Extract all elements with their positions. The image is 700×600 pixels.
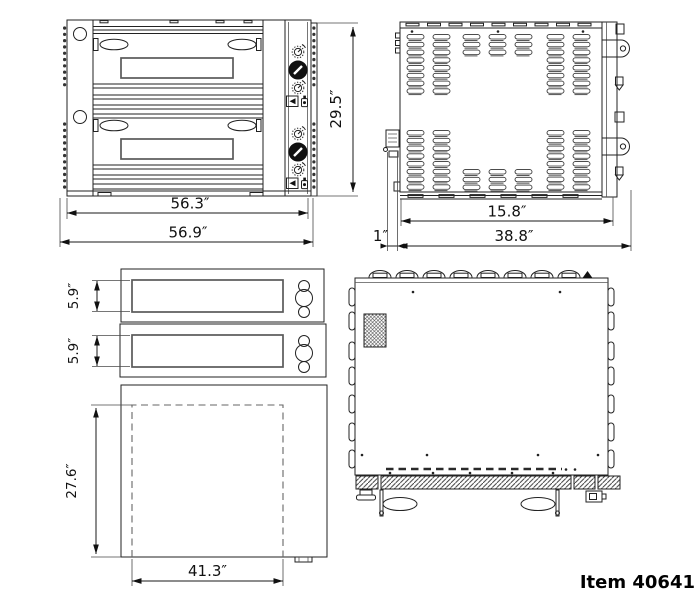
dimension-callouts: 56.3″ 56.9″ 29.5″ 15.8″ 38.8″ 1″ 5.9″ 5.… xyxy=(60,23,631,586)
door-handle-lower-left xyxy=(100,120,128,131)
door-handle-upper-right xyxy=(228,39,256,50)
chamber-top-view xyxy=(121,385,327,562)
top-handle-left xyxy=(383,498,417,511)
lower-knob-large xyxy=(296,345,313,362)
front-body xyxy=(93,20,263,196)
front-foot xyxy=(360,490,372,495)
item-number: Item 40641 xyxy=(580,572,695,593)
side-panel xyxy=(400,22,602,192)
door-window-upper xyxy=(121,58,233,78)
upper-knob-large xyxy=(296,290,313,307)
vent-cap xyxy=(583,271,593,278)
oven-top-view xyxy=(349,271,620,516)
door-pivot-upper xyxy=(74,28,87,41)
door-handle-lower-right xyxy=(228,120,256,131)
fastener-dots xyxy=(361,30,600,474)
side-view xyxy=(384,22,630,199)
rear-clips xyxy=(369,271,580,278)
chamber-outline xyxy=(121,385,327,557)
upper-knob-small-2 xyxy=(299,307,310,318)
vent-louvers xyxy=(407,35,590,191)
dim-chamber-width: 41.3″ xyxy=(188,562,227,580)
power-connector xyxy=(586,491,602,502)
dim-overall-depth: 38.8″ xyxy=(494,227,533,245)
dim-upper-opening-height: 5.9″ xyxy=(66,283,82,310)
foot-left xyxy=(98,193,111,197)
upper-deck-front xyxy=(121,269,324,322)
technical-drawing: 56.3″ 56.9″ 29.5″ 15.8″ 38.8″ 1″ 5.9″ 5.… xyxy=(0,0,700,600)
right-side-column xyxy=(263,20,285,196)
left-side-panel xyxy=(67,20,93,196)
dim-lower-opening-height: 5.9″ xyxy=(66,338,82,365)
exhaust-grille xyxy=(364,314,386,347)
door-handle-upper-left xyxy=(100,39,128,50)
lower-deck-front xyxy=(120,324,326,377)
deck-opening-views xyxy=(120,269,326,377)
door-pivot-lower xyxy=(74,111,87,124)
top-edge-ticks xyxy=(100,21,252,23)
dim-chamber-depth: 27.6″ xyxy=(64,463,80,498)
top-handle-right xyxy=(521,498,555,511)
front-louver-band xyxy=(381,476,571,489)
foot-right xyxy=(250,193,263,197)
edge-clips xyxy=(349,288,614,468)
gas-fitting xyxy=(386,130,399,147)
control-panel-knobs xyxy=(287,45,308,189)
front-view xyxy=(65,20,317,196)
lower-knob-small-2 xyxy=(299,362,310,373)
dim-overall-height: 29.5″ xyxy=(327,89,345,128)
baking-chamber-dashed xyxy=(132,405,283,557)
lower-deck-opening xyxy=(132,335,283,367)
side-top-ticks xyxy=(406,23,591,26)
hinge-strip xyxy=(602,22,617,197)
dim-front-offset: 1″ xyxy=(373,227,389,245)
upper-deck-opening xyxy=(132,280,283,312)
dim-front-inner-width: 56.3″ xyxy=(170,195,209,213)
dim-upper-depth: 15.8″ xyxy=(487,203,526,221)
dim-front-overall-width: 56.9″ xyxy=(168,224,207,242)
door-window-lower xyxy=(121,139,233,159)
extension-lines xyxy=(60,23,631,586)
body-panel-lines xyxy=(67,27,311,192)
top-outline xyxy=(355,278,608,475)
